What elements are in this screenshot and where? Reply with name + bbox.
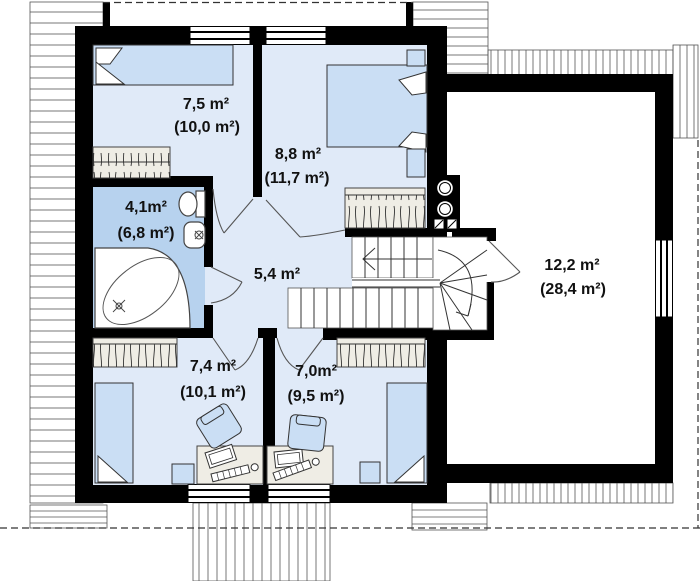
chimney-block — [430, 175, 460, 232]
floor-plan-page: 7,5 m² (10,0 m²) 8,8 m² (11,7 m²) 4,1m² … — [0, 0, 700, 581]
nightstand-bedroom70 — [360, 462, 380, 483]
desk-bedroom70 — [267, 446, 333, 484]
bed-bedroom75 — [93, 45, 233, 85]
dormer-post-right — [406, 2, 413, 26]
exterior-steps-left — [30, 505, 107, 528]
toilet-icon — [179, 191, 205, 217]
room-area-label: 5,4 m² — [254, 266, 300, 283]
roof-hatch-below-annex — [490, 483, 673, 503]
dormer-post-left — [103, 2, 110, 26]
room-area-label: 7,0m² — [295, 363, 337, 380]
exterior-steps-right — [412, 503, 487, 530]
room-area-label: 4,1m² — [125, 199, 167, 216]
wall-post-between-doors — [258, 328, 277, 338]
window-bottom-1 — [188, 485, 250, 503]
nightstand-bedroom88-top — [407, 50, 425, 66]
room-area-label: 8,8 m² — [275, 146, 321, 163]
armchair-bedroom70 — [287, 414, 326, 452]
room-gross-area-label: (9,5 m²) — [288, 388, 345, 405]
sink-icon — [184, 222, 205, 248]
room-gross-area-label: (10,1 m²) — [180, 384, 246, 401]
wardrobe-bedroom74 — [93, 338, 177, 367]
room-area-label: 7,5 m² — [183, 96, 229, 113]
wardrobe-bedroom70 — [337, 338, 425, 367]
wardrobe-bedroom75 — [93, 147, 170, 178]
nightstand-bedroom88-bottom — [407, 149, 425, 177]
window-right — [656, 240, 673, 317]
room-gross-area-label: (10,0 m²) — [174, 119, 240, 136]
wall-bedroom88-bottom — [345, 228, 427, 237]
roof-hatch-right — [673, 45, 698, 138]
wardrobe-bedroom88 — [345, 188, 425, 228]
floor-plan-drawing: 7,5 m² (10,0 m²) 8,8 m² (11,7 m²) 4,1m² … — [0, 0, 700, 581]
wall-bathroom-bottom — [93, 328, 213, 338]
room-gross-area-label: (6,8 m²) — [118, 225, 175, 242]
desk-bedroom74 — [197, 444, 263, 484]
terrace-hatch-bottom — [193, 503, 330, 581]
stair-lower-flight — [288, 288, 433, 328]
room-gross-area-label: (28,4 m²) — [540, 281, 606, 298]
wall-bedroom75-bedroom88 — [253, 45, 262, 197]
window-bottom-2 — [268, 485, 330, 503]
room-area-label: 7,4 m² — [190, 358, 236, 375]
room-gross-area-label: (11,7 m²) — [265, 170, 330, 187]
window-top-1 — [190, 27, 250, 45]
roof-hatch-above-annex — [488, 50, 673, 75]
nightstand-bedroom74 — [172, 464, 194, 484]
window-top-2 — [266, 27, 326, 45]
room-area-label: 12,2 m² — [544, 257, 599, 274]
